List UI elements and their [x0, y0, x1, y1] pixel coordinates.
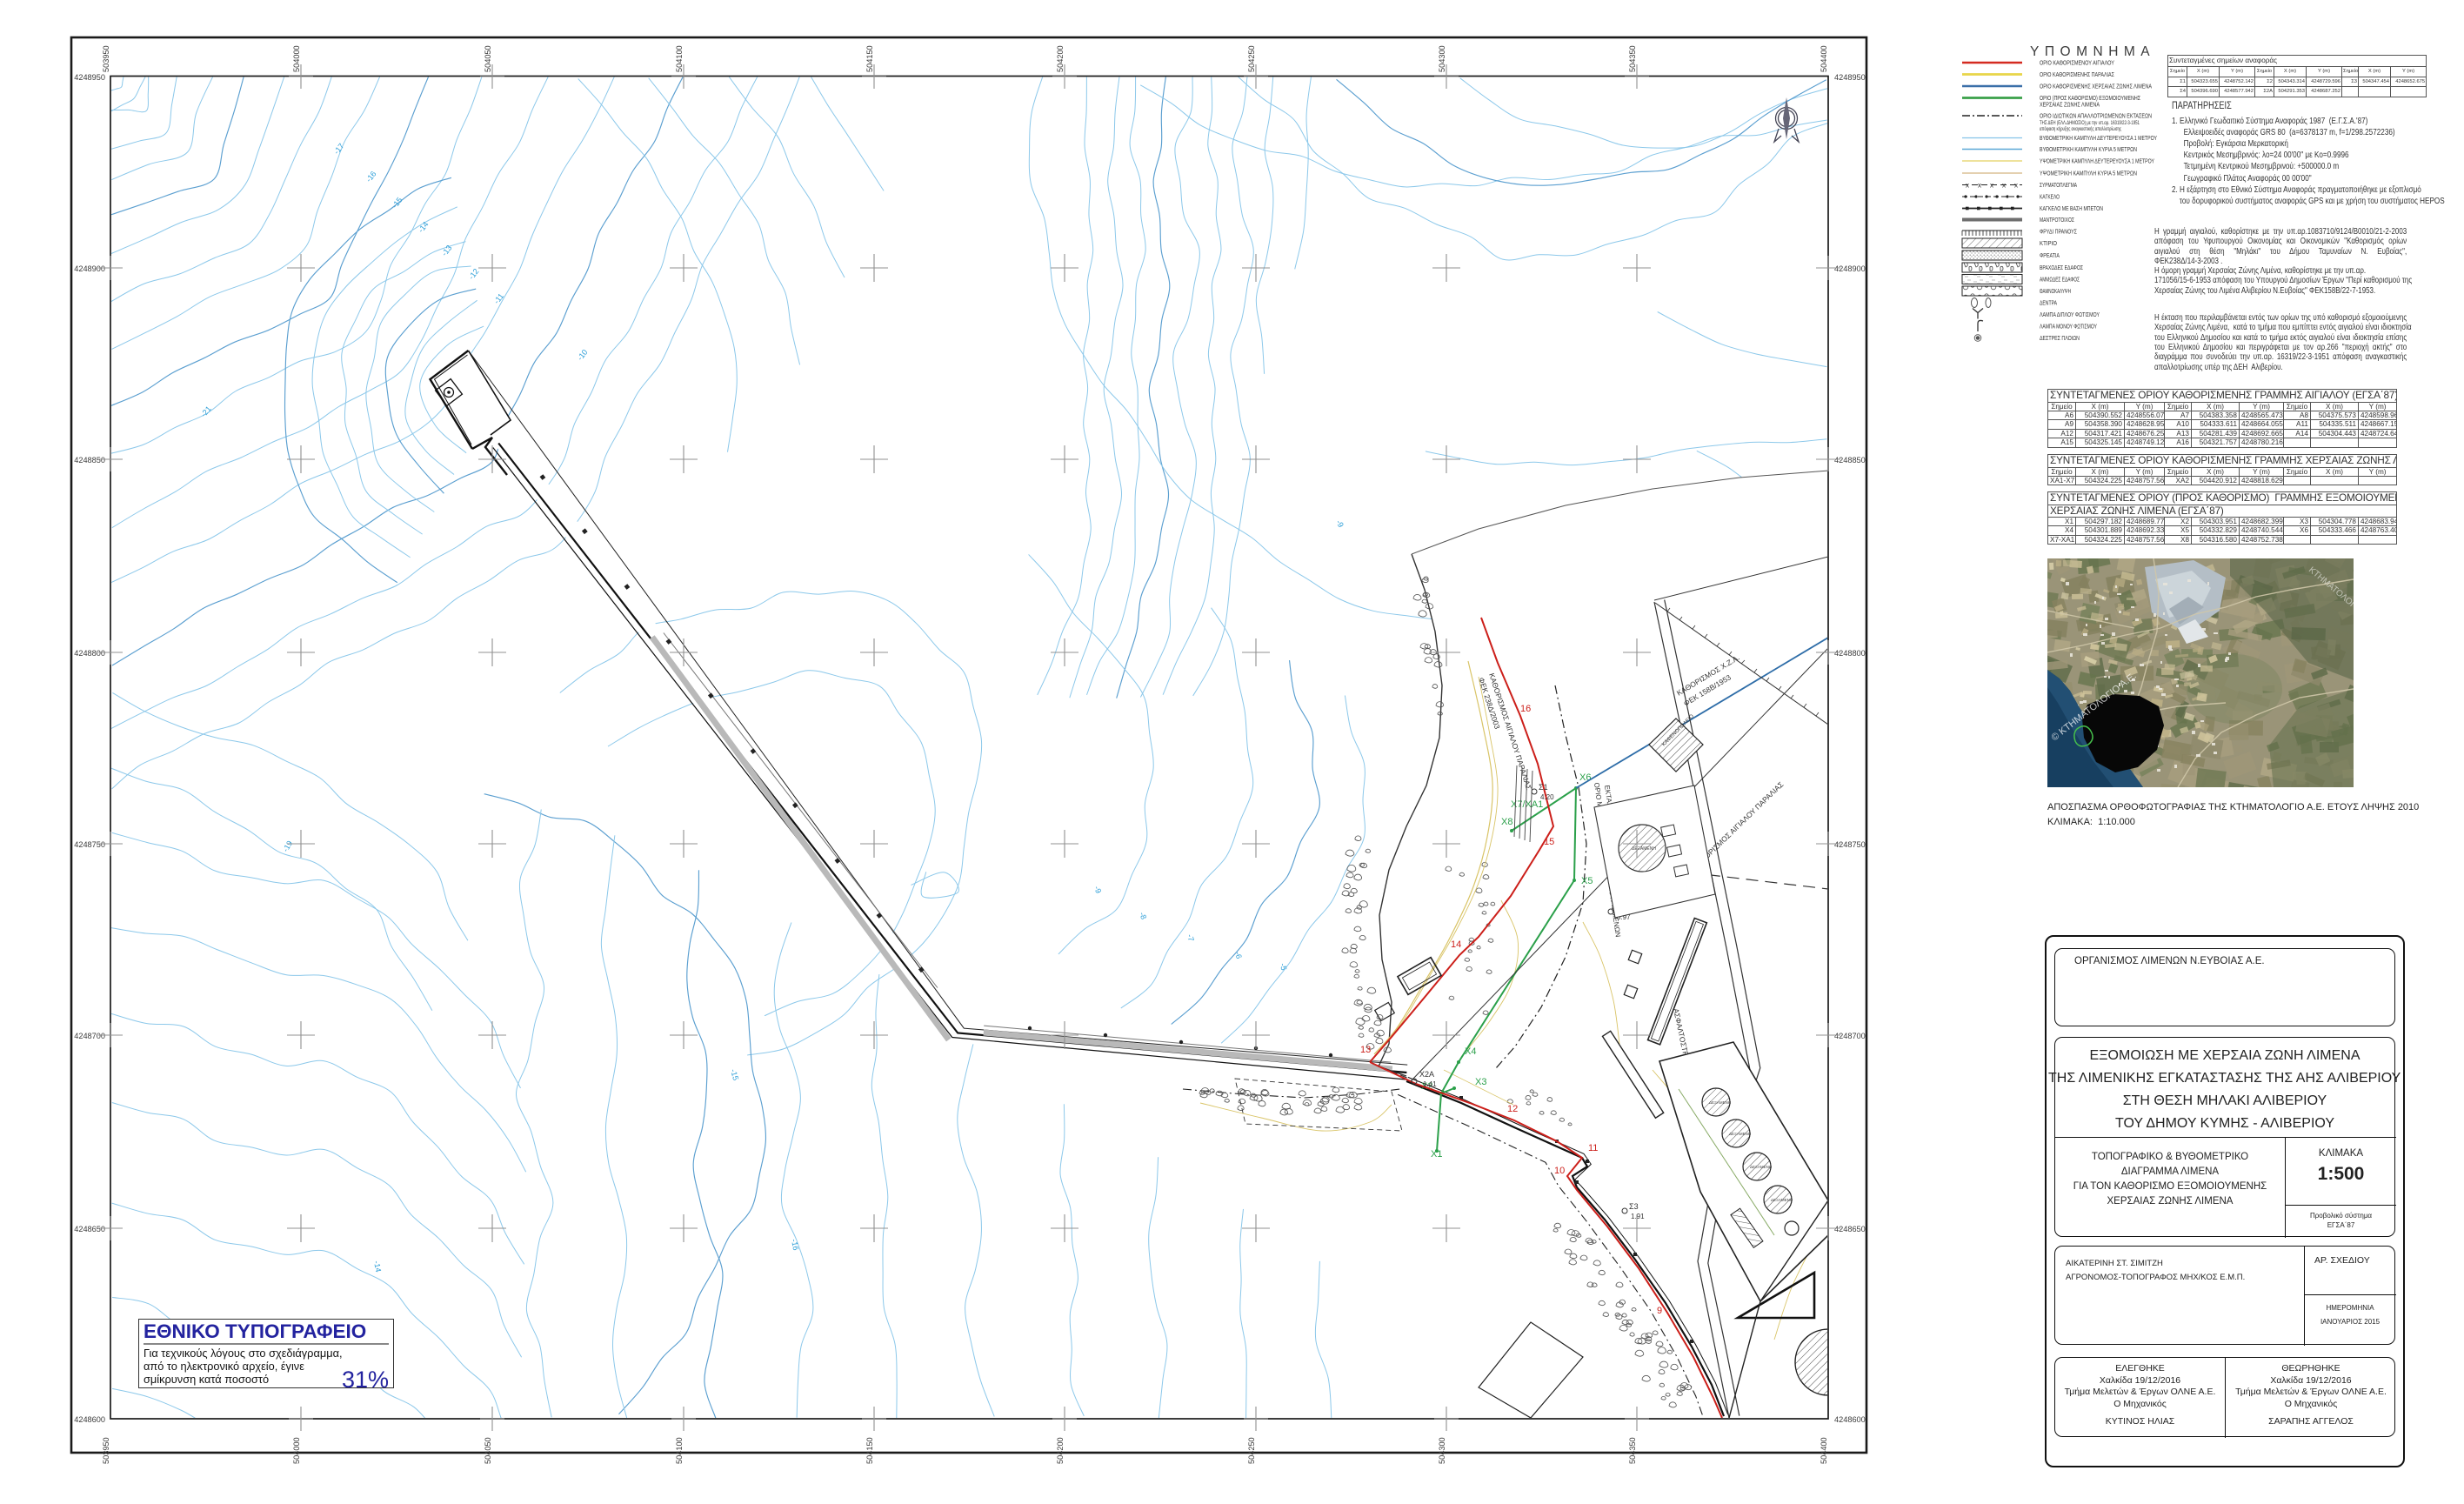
svg-text:1.41: 1.41: [1423, 1080, 1437, 1088]
svg-text:4248600: 4248600: [1834, 1415, 1866, 1424]
svg-text:ΘΑΜΝΟΚΑΛΥΨΗ: ΘΑΜΝΟΚΑΛΥΨΗ: [2040, 289, 2071, 295]
svg-text:4248650: 4248650: [1834, 1225, 1866, 1233]
svg-text:ΟΡΙΟ ΙΔΙΩΤΙΚΩΝ ΑΠΑΛΛΟΤΡΙΩΜΕΝΩΝ: ΟΡΙΟ ΙΔΙΩΤΙΚΩΝ ΑΠΑΛΛΟΤΡΙΩΜΕΝΩΝ ΕΚΤΑΣΕΩΝ: [2040, 114, 2152, 120]
svg-text:12: 12: [1507, 1104, 1518, 1114]
svg-text:4248850: 4248850: [74, 456, 105, 465]
svg-text:ΛΑΜΠΑ ΜΟΝΟΥ ΦΩΤΙΣΜΟΥ: ΛΑΜΠΑ ΜΟΝΟΥ ΦΩΤΙΣΜΟΥ: [2040, 324, 2097, 331]
svg-text:ΔΕΞΑΜΕΝΗ: ΔΕΞΑΜΕΝΗ: [1632, 846, 1656, 852]
svg-text:ΟΡΙΟ ΚΑΘΟΡΙΣΜΕΝΗΣ ΧΕΡΣΑΙΑΣ ΖΩΝ: ΟΡΙΟ ΚΑΘΟΡΙΣΜΕΝΗΣ ΧΕΡΣΑΙΑΣ ΖΩΝΗΣ ΛΙΜΕΝΑ: [2040, 84, 2152, 90]
svg-text:503950: 503950: [102, 1437, 110, 1464]
svg-text:4248850: 4248850: [1834, 456, 1866, 465]
svg-text:-15: -15: [729, 1068, 740, 1081]
svg-text:ΥΠΟΜΝΗΜΑ: ΥΠΟΜΝΗΜΑ: [2030, 44, 2155, 59]
svg-text:Σ1: Σ1: [1539, 783, 1548, 792]
svg-text:X4: X4: [1465, 1046, 1476, 1057]
svg-text:-7: -7: [1185, 933, 1196, 942]
svg-text:504300: 504300: [1438, 1437, 1446, 1464]
svg-text:-9: -9: [1092, 885, 1103, 894]
svg-text:504400: 504400: [1820, 1437, 1828, 1464]
svg-text:4248700: 4248700: [1834, 1032, 1866, 1040]
svg-text:4248800: 4248800: [74, 649, 105, 658]
svg-text:ΦΡΥΔΙ ΠΡΑΝΟΥΣ: ΦΡΥΔΙ ΠΡΑΝΟΥΣ: [2040, 230, 2078, 236]
svg-text:504150: 504150: [865, 1437, 874, 1464]
svg-text:-6: -6: [1233, 951, 1244, 959]
svg-text:ΥΨΟΜΕΤΡΙΚΗ ΚΑΜΠΥΛΗ ΚΥΡΙΑ 5 ΜΕ: ΥΨΟΜΕΤΡΙΚΗ ΚΑΜΠΥΛΗ ΚΥΡΙΑ 5 ΜΕΤΡΩΝ: [2040, 171, 2137, 177]
svg-text:14: 14: [1451, 939, 1461, 950]
svg-text:X5: X5: [1581, 876, 1593, 886]
svg-text:15: 15: [1544, 837, 1554, 847]
svg-text:10: 10: [1554, 1166, 1565, 1176]
svg-text:ΧΕΡΣΑΙΑΣ ΖΩΝΗΣ ΛΙΜΕΝΑ: ΧΕΡΣΑΙΑΣ ΖΩΝΗΣ ΛΙΜΕΝΑ: [2040, 103, 2100, 109]
svg-text:x: x: [1978, 182, 1981, 190]
svg-text:x: x: [2002, 182, 2006, 190]
svg-text:ΔΕΞΑΜΕΝΗ: ΔΕΞΑΜΕΝΗ: [1709, 1100, 1731, 1105]
svg-text:X8: X8: [1501, 817, 1512, 827]
svg-text:Σ3: Σ3: [1629, 1202, 1639, 1211]
svg-text:ΔΕΝΤΡΑ: ΔΕΝΤΡΑ: [2040, 301, 2057, 307]
svg-text:4.20: 4.20: [1540, 793, 1554, 801]
svg-text:X3: X3: [1475, 1077, 1486, 1087]
svg-text:-9: -9: [1334, 518, 1346, 529]
svg-text:504050: 504050: [484, 1437, 492, 1464]
svg-text:ΦΡΕΑΤΙΑ: ΦΡΕΑΤΙΑ: [2040, 253, 2060, 259]
svg-text:x: x: [1990, 182, 1993, 190]
svg-text:ΛΑΜΠΑ ΔΙΠΛΟΥ ΦΩΤΙΣΜΟΥ: ΛΑΜΠΑ ΔΙΠΛΟΥ ΦΩΤΙΣΜΟΥ: [2040, 312, 2100, 318]
svg-text:-19: -19: [281, 839, 294, 853]
svg-text:4248750: 4248750: [1834, 840, 1866, 849]
svg-text:504000: 504000: [292, 1437, 301, 1464]
svg-text:ΟΡΙΟ (ΠΡΟΣ ΚΑΘΟΡΙΣΜΟ) ΕΞΟΜΟΙΟΥ: ΟΡΙΟ (ΠΡΟΣ ΚΑΘΟΡΙΣΜΟ) ΕΞΟΜΟΙΟΥΜΕΝΗΣ: [2040, 96, 2141, 102]
svg-text:4248700: 4248700: [74, 1032, 105, 1040]
svg-text:ΒΥΘΟΜΕΤΡΙΚΗ ΚΑΜΠΥΛΗ ΔΕΥΤΕΡΕΥΟΥ: ΒΥΘΟΜΕΤΡΙΚΗ ΚΑΜΠΥΛΗ ΔΕΥΤΕΡΕΥΟΥΣΑ 1 ΜΕΤΡΟ…: [2040, 136, 2157, 142]
svg-text:-5: -5: [1279, 963, 1288, 972]
svg-text:504350: 504350: [1628, 1437, 1637, 1464]
svg-text:x: x: [2014, 182, 2018, 190]
svg-text:4248800: 4248800: [1834, 649, 1866, 658]
svg-text:ΚΑΓΚΕΛΟ: ΚΑΓΚΕΛΟ: [2040, 195, 2060, 201]
svg-text:ΣΥΡΜΑΤΟΠΛΕΓΜΑ: ΣΥΡΜΑΤΟΠΛΕΓΜΑ: [2040, 183, 2077, 189]
svg-text:ΔΕΞΑΜΕΝΗ: ΔΕΞΑΜΕΝΗ: [1750, 1165, 1772, 1169]
svg-text:ΔΕΞΑΜΕΝΗ: ΔΕΞΑΜΕΝΗ: [1729, 1132, 1751, 1136]
svg-text:-16: -16: [790, 1239, 800, 1252]
svg-text:13: 13: [1360, 1045, 1371, 1055]
svg-text:ΒΥΘΟΜΕΤΡΙΚΗ ΚΑΜΠΥΛΗ ΚΥΡΙΑ 5 ΜΕ: ΒΥΘΟΜΕΤΡΙΚΗ ΚΑΜΠΥΛΗ ΚΥΡΙΑ 5 ΜΕΤΡΩΝ: [2040, 147, 2137, 153]
svg-text:ΑΜΜΩΔΕΣ ΕΔΑΦΟΣ: ΑΜΜΩΔΕΣ ΕΔΑΦΟΣ: [2040, 277, 2080, 284]
svg-text:4248600: 4248600: [74, 1415, 105, 1424]
svg-text:ΔΕΣΤΡΕΣ ΠΛΟΙΩΝ: ΔΕΣΤΡΕΣ ΠΛΟΙΩΝ: [2040, 336, 2080, 342]
svg-text:X6: X6: [1579, 772, 1591, 783]
svg-text:ΔΕΞΑΜΕΝΗ: ΔΕΞΑΜΕΝΗ: [1771, 1198, 1793, 1202]
svg-text:ΟΡΙΟ ΚΑΘΟΡΙΣΜΕΝΟΥ ΑΙΓΙΑΛΟΥ: ΟΡΙΟ ΚΑΘΟΡΙΣΜΕΝΟΥ ΑΙΓΙΑΛΟΥ: [2040, 61, 2114, 67]
svg-text:16: 16: [1520, 704, 1531, 714]
svg-text:ΟΡΙΟ ΚΑΘΟΡΙΣΜΕΝΗΣ ΠΑΡΑΛΙΑΣ: ΟΡΙΟ ΚΑΘΟΡΙΣΜΕΝΗΣ ΠΑΡΑΛΙΑΣ: [2040, 72, 2115, 78]
svg-text:9: 9: [1657, 1306, 1662, 1316]
svg-text:1.91: 1.91: [1631, 1213, 1645, 1220]
svg-text:απόφαση κήρυξης αναγκαστικής α: απόφαση κήρυξης αναγκαστικής απαλλοτρίωσ…: [2040, 126, 2121, 132]
svg-text:x: x: [1966, 182, 1969, 190]
svg-text:ΚΤΙΡΙΟ: ΚΤΙΡΙΟ: [2040, 241, 2057, 247]
svg-text:504200: 504200: [1056, 1437, 1065, 1464]
svg-text:4248750: 4248750: [74, 840, 105, 849]
svg-text:ΥΨΟΜΕΤΡΙΚΗ ΚΑΜΠΥΛΗ ΔΕΥΤΕΡΕΥΟΥΣ: ΥΨΟΜΕΤΡΙΚΗ ΚΑΜΠΥΛΗ ΔΕΥΤΕΡΕΥΟΥΣΑ 1 ΜΕΤΡΟΥ: [2040, 159, 2154, 165]
svg-text:11: 11: [1588, 1143, 1598, 1153]
svg-text:4248650: 4248650: [74, 1225, 105, 1233]
svg-text:ΒΡΑΧΩΔΕΣ ΕΔΑΦΟΣ: ΒΡΑΧΩΔΕΣ ΕΔΑΦΟΣ: [2040, 265, 2083, 271]
svg-text:504100: 504100: [675, 1437, 684, 1464]
svg-text:ΤΗΣ ΔΕΗ (ΕΛΛ.ΔΗΜΟΣΙΟ) με την υ: ΤΗΣ ΔΕΗ (ΕΛΛ.ΔΗΜΟΣΙΟ) με την υπ.αρ. 1631…: [2040, 121, 2140, 126]
svg-text:-14: -14: [372, 1260, 383, 1273]
svg-text:ΜΑΝΤΡΟΤΟΙΧΟΣ: ΜΑΝΤΡΟΤΟΙΧΟΣ: [2040, 217, 2074, 224]
svg-text:504250: 504250: [1247, 1437, 1256, 1464]
svg-text:-8: -8: [1138, 911, 1148, 920]
svg-text:ΚΑΓΚΕΛΟ ΜΕ ΒΑΣΗ ΜΠΕΤΟΝ: ΚΑΓΚΕΛΟ ΜΕ ΒΑΣΗ ΜΠΕΤΟΝ: [2040, 206, 2103, 212]
svg-text:Χ2Α: Χ2Α: [1419, 1070, 1434, 1079]
